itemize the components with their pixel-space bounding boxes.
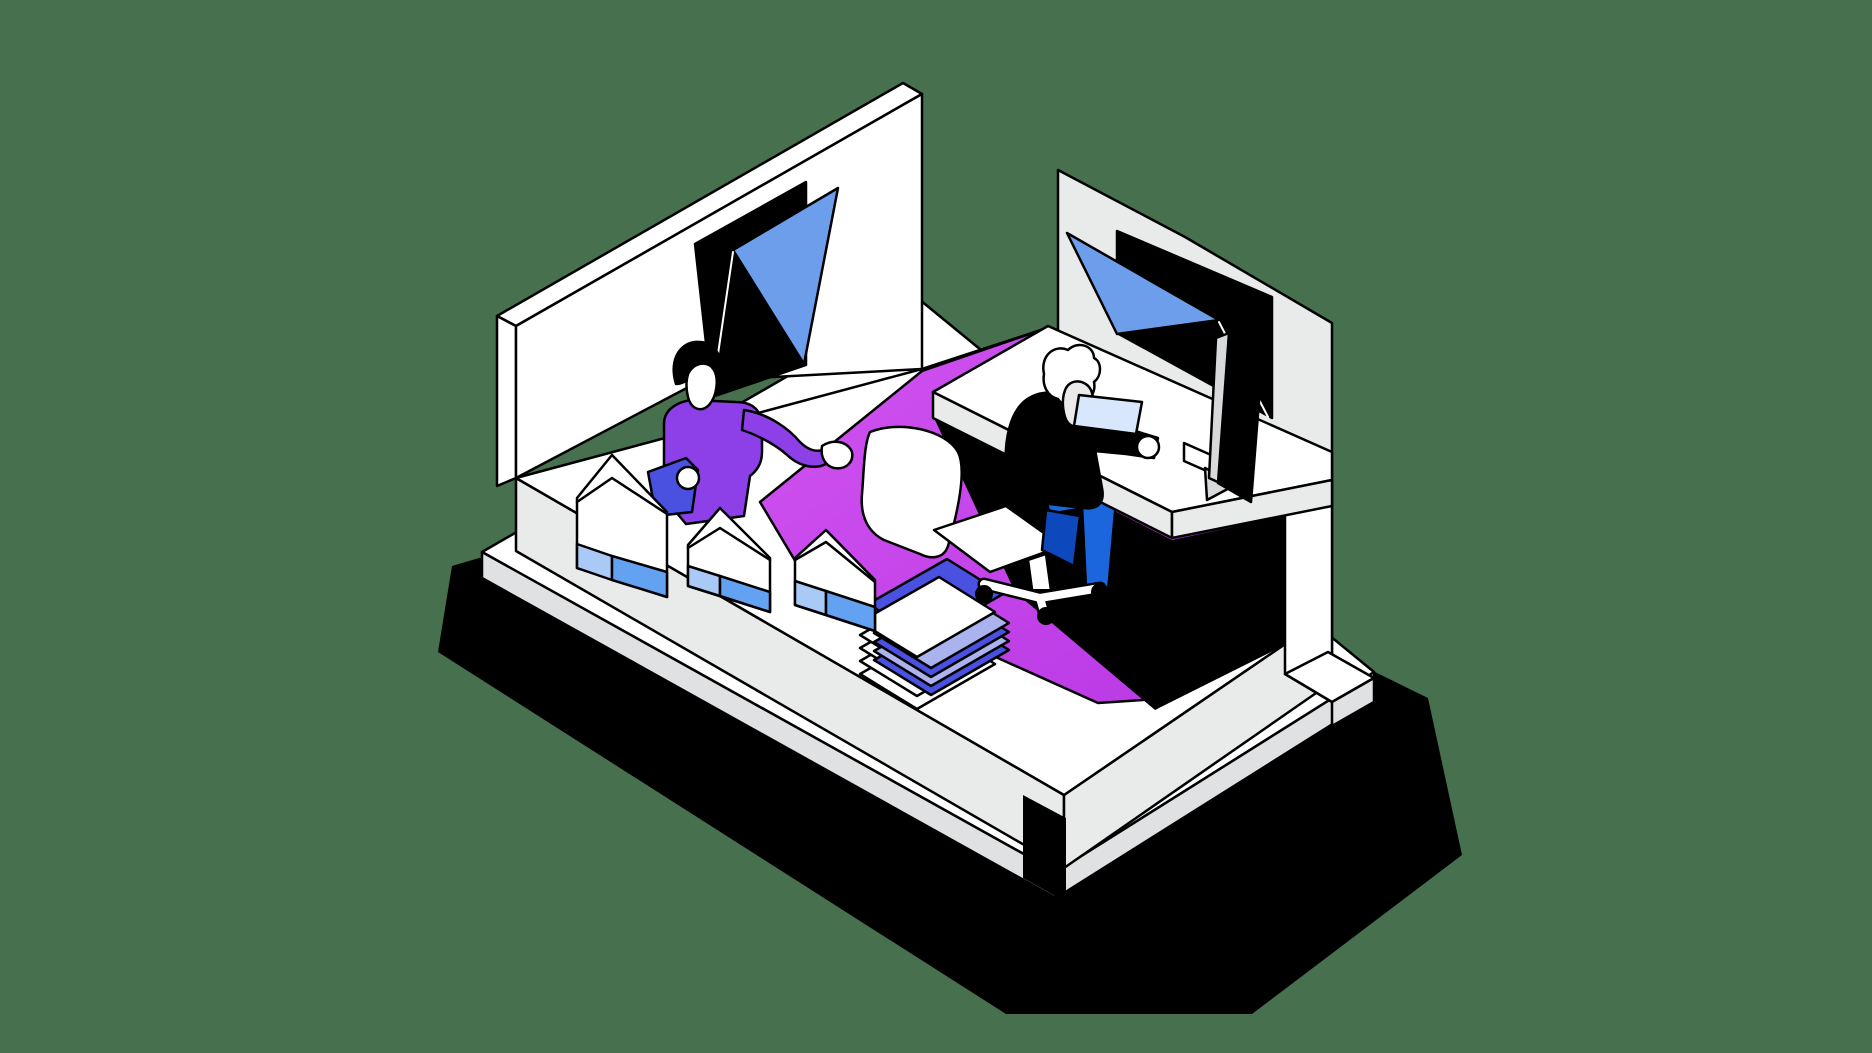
left-wall-outer-edge	[497, 316, 516, 486]
standing-hand-left	[677, 467, 699, 489]
chair-caster	[1037, 607, 1055, 625]
chair-caster	[975, 585, 993, 603]
standing-hand-right	[822, 442, 853, 469]
office-illustration	[0, 0, 1872, 1053]
chair-caster	[1091, 583, 1109, 601]
document-in-hand	[1074, 395, 1142, 434]
seated-hand	[1137, 436, 1159, 458]
standing-face	[687, 364, 717, 410]
